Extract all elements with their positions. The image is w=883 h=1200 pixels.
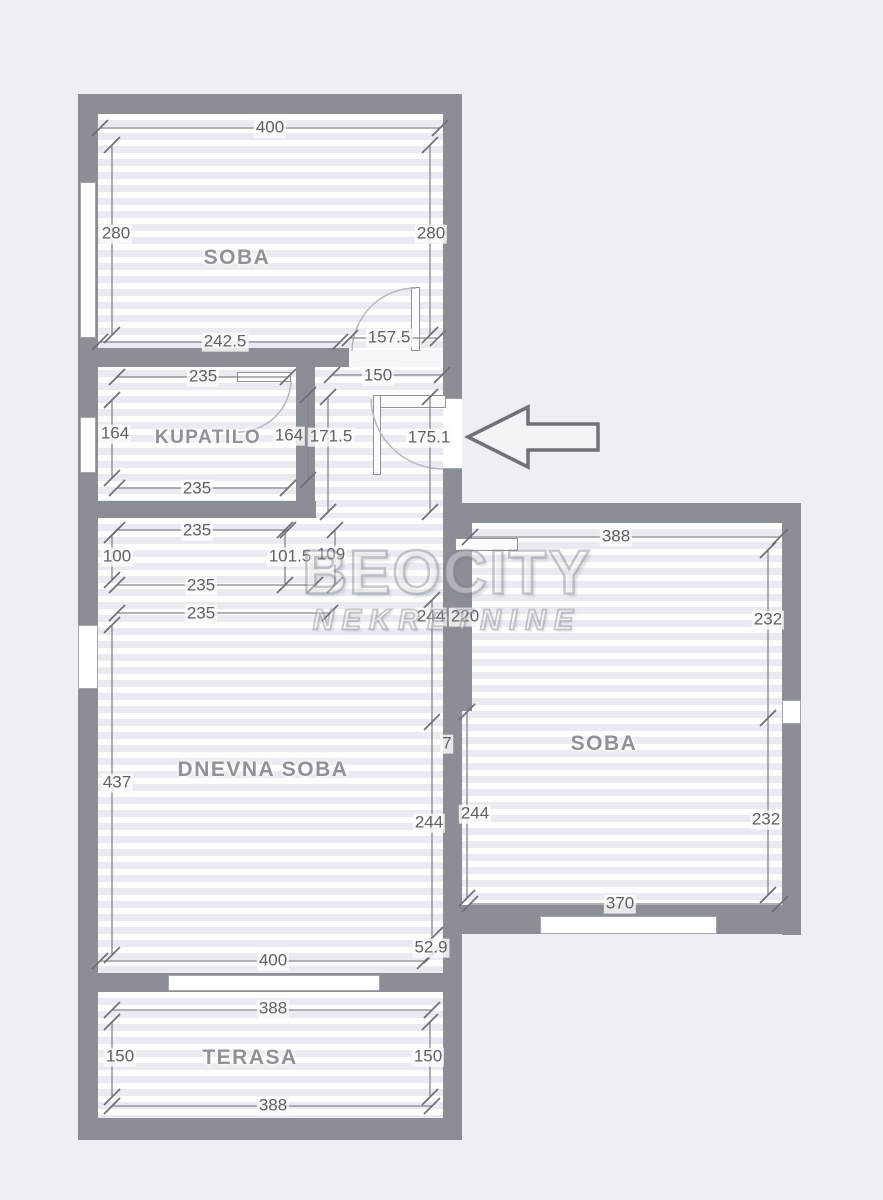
window-kupatilo-left — [80, 417, 96, 473]
dim-corridor-top-b: 220 — [449, 608, 481, 627]
room-floor-soba-top — [98, 114, 443, 350]
dim-kupatilo-right: 164 — [273, 427, 305, 446]
dim-soba-top-bot-left: 242.5 — [202, 333, 249, 352]
window-dnevna-left — [78, 625, 98, 689]
dim-corridor-top-a: 244 — [415, 608, 447, 627]
dim-kupatilo-top: 235 — [187, 368, 219, 387]
dim-soba-top-left: 280 — [100, 225, 132, 244]
dim-passage-mid-b: 109 — [315, 546, 347, 565]
room-label-soba-right: SOBA — [571, 732, 638, 756]
sliding-door-terasa — [168, 975, 380, 991]
room-label-kupatilo: KUPATILO — [155, 427, 261, 449]
room-floor-soba-right — [462, 523, 782, 905]
wall-terasa-bottom — [78, 1118, 462, 1140]
dim-corridor-low-b: 244 — [459, 805, 491, 824]
dim-soba-right-right-b: 232 — [750, 811, 782, 830]
window-right-outer — [782, 700, 801, 724]
dim-dnevna-gap: 52.9 — [412, 939, 449, 958]
dim-dnevna-bottom: 400 — [257, 952, 289, 971]
window-soba-top-left — [80, 182, 96, 338]
closet-hall-horizontal — [373, 395, 446, 408]
dim-hall-width-right: 175.1 — [406, 429, 453, 448]
dim-terasa-left: 150 — [104, 1048, 136, 1067]
room-label-dnevna: DNEVNA SOBA — [178, 758, 349, 782]
dim-kupatilo-left: 164 — [99, 425, 131, 444]
dim-passage-bottom-a: 235 — [185, 577, 217, 596]
dim-soba-top-right: 280 — [415, 225, 447, 244]
dim-corridor-low-a: 244 — [413, 814, 445, 833]
dim-terasa-bottom: 388 — [257, 1097, 289, 1116]
dim-kupatilo-bottom-b: 235 — [181, 522, 213, 541]
dim-kupatilo-bottom-a: 235 — [181, 480, 213, 499]
room-floor-dnevna — [98, 518, 443, 973]
door-leaf-soba-top — [411, 287, 420, 351]
dim-hall-width-left: 171.5 — [308, 428, 355, 447]
dim-passage-left: 100 — [101, 548, 133, 567]
room-label-terasa: TERASA — [202, 1046, 297, 1070]
door-lintel-kupatilo — [237, 372, 291, 382]
dim-terasa-right: 150 — [412, 1048, 444, 1067]
dim-terasa-top: 388 — [257, 1000, 289, 1019]
dim-soba-top-width: 400 — [254, 119, 286, 138]
floor-plan-canvas: 400 280 280 242.5 157.5 235 150 164 164 … — [0, 0, 883, 1200]
room-floor-kupatilo-hall — [98, 364, 443, 518]
wall-top — [78, 94, 462, 114]
dim-dnevna-left: 437 — [101, 774, 133, 793]
entrance-arrow-icon — [468, 407, 598, 467]
dim-corridor-mid: 7 — [440, 735, 453, 754]
closet-hall-vertical — [373, 395, 381, 475]
dim-soba-right-bottom: 370 — [604, 895, 636, 914]
dim-passage-mid-a: 101.5 — [267, 548, 314, 567]
dim-soba-right-top: 388 — [600, 528, 632, 547]
dim-hall-top: 150 — [362, 367, 394, 386]
room-label-soba-top: SOBA — [204, 246, 271, 270]
door-opening-soba-top — [349, 350, 443, 367]
radiator-soba-right — [455, 538, 518, 551]
dim-soba-top-bot-right: 157.5 — [366, 329, 413, 348]
window-soba-right-bottom — [540, 916, 717, 934]
dim-soba-right-right-a: 232 — [752, 611, 784, 630]
wall-right-section-top — [443, 503, 801, 523]
wall-kupatilo-bottom — [78, 501, 316, 518]
dim-passage-bottom-b: 235 — [185, 605, 217, 624]
